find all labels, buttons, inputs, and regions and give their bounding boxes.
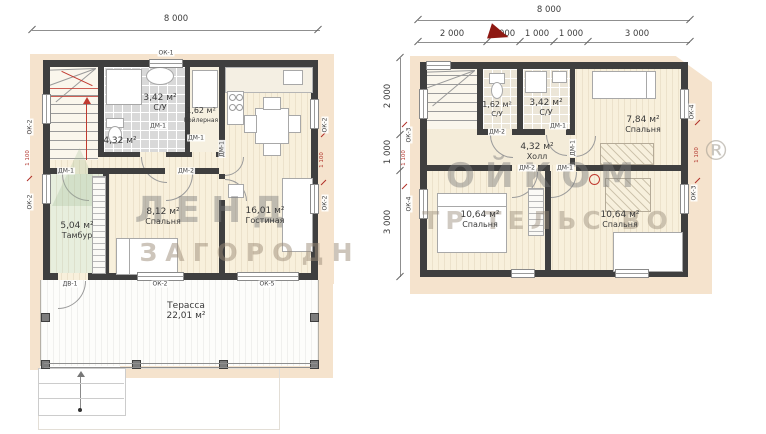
wall (182, 60, 318, 67)
terrace-edge (44, 363, 317, 364)
room-label-bedroom-left: 10,64 м² Спальня (460, 210, 499, 229)
window-ok2 (138, 273, 183, 280)
room-name: Спальня (600, 220, 639, 229)
room-label-terrace: Терасса 22,01 м² (166, 302, 205, 321)
room-area: 3,42 м² (529, 98, 562, 108)
room-label-su-left: 1,62 м² С/У (482, 100, 512, 119)
wall (88, 168, 165, 174)
window (512, 270, 534, 277)
window (427, 62, 450, 69)
chair (263, 143, 281, 156)
step-line (38, 398, 124, 399)
wall (420, 118, 427, 190)
room-label-bedroom-right: 10,64 м² Спальня (600, 210, 639, 229)
room-area: 7,84 м² (625, 115, 661, 125)
door-tag: ДМ-1 (187, 135, 205, 142)
window-tag: ОК-2 (152, 281, 169, 288)
door-tag: ДМ-2 (488, 129, 506, 136)
wall (570, 69, 575, 135)
window-tag: ОК-2 (322, 117, 329, 134)
dim-label: 2 000 (440, 29, 464, 39)
room-label-hall: 4,32 м² (103, 136, 136, 146)
wall (477, 129, 488, 135)
wall (681, 62, 688, 90)
window-tag: ОК-3 (691, 185, 698, 202)
window-tag: ОК-2 (27, 119, 34, 136)
room-name: Бойлерная (184, 116, 218, 125)
window-tag: ОК-1 (158, 50, 175, 57)
kitchen-sink (283, 70, 303, 85)
room-label-su: 3,42 м² С/У (143, 93, 176, 112)
wall (43, 60, 150, 67)
sink (146, 67, 174, 85)
room-area: 1,62 м² (184, 106, 218, 116)
room-name: Терасса (166, 302, 205, 311)
door-tag: ДМ-1 (556, 165, 574, 172)
room-label-living: 16,01 м² Гостиная (245, 206, 284, 225)
room-name: Гостиная (245, 216, 284, 225)
red-dim-label: 1 100 (319, 152, 325, 168)
room-label-bedroom: 8,12 м² Спальня (145, 207, 181, 226)
door-tag: ДМ-2 (177, 168, 195, 175)
window-ok1 (150, 60, 182, 67)
room-area: 16,01 м² (245, 206, 284, 216)
watermark-text: ЗАГОРОДН (139, 238, 360, 267)
window-ok2 (43, 175, 50, 203)
door-tag: ДМ-2 (518, 165, 536, 172)
wall (166, 152, 192, 157)
room-name: С/У (529, 108, 562, 117)
room-name: Холл (520, 152, 553, 161)
plan1-roof-overhang-right (318, 280, 333, 372)
room-name: Спальня (145, 217, 181, 226)
stairs-treads (50, 95, 98, 160)
stairs-direction-arrow (83, 97, 91, 104)
steps-arrow-line (80, 376, 81, 410)
wall (43, 203, 50, 280)
wall (517, 69, 523, 129)
room-label-hall: 4,32 м² Холл (520, 142, 553, 161)
dim-label: 8 000 (537, 5, 561, 15)
steps-arrow-head (77, 371, 85, 377)
room-area: 8,12 м² (145, 207, 181, 217)
dim-label: 8 000 (164, 14, 188, 24)
stove-burner (229, 94, 236, 101)
window-ok4 (681, 90, 688, 118)
room-label-boiler: 1,62 м² Бойлерная (184, 106, 218, 125)
steps-dot (78, 408, 82, 412)
window-tag: ОК-2 (27, 194, 34, 211)
terrace-edge (44, 367, 317, 368)
window-ok3 (420, 90, 427, 118)
wall (566, 129, 575, 135)
window-ok3 (681, 185, 688, 213)
dim-line (418, 20, 690, 21)
wall (43, 273, 58, 280)
door-tag: ДМ-1 (149, 123, 167, 130)
stove-burner (229, 104, 236, 111)
wall (450, 62, 688, 69)
room-area: 4,32 м² (520, 142, 553, 152)
wall (43, 60, 50, 95)
room-area: 5,04 м² (60, 221, 93, 231)
red-dim-tick (402, 184, 408, 190)
room-name: Тамбур (60, 231, 93, 240)
shower (106, 69, 142, 105)
wall (298, 273, 318, 280)
window-tag: ОК-2 (322, 195, 329, 212)
door-tag: ДМ-1 (219, 140, 226, 158)
wall (192, 168, 219, 174)
door-tag: ДМ-1 (570, 139, 577, 157)
room-name: С/У (143, 103, 176, 112)
window-ok2 (311, 185, 318, 213)
red-dim-label: 1 100 (694, 147, 700, 163)
room-label-su-right: 3,42 м² С/У (529, 98, 562, 117)
room-area: 4,32 м² (103, 136, 136, 146)
dim-label: 3 000 (625, 29, 649, 39)
room-name: С/У (482, 110, 512, 119)
chair (244, 115, 257, 133)
floor-plan-sheet: 8 000 3,42 м² С/У 1,62 м² Бойлерная 4,32… (0, 0, 766, 434)
dining-table (255, 108, 289, 144)
bed-pillow (116, 238, 130, 275)
chair (263, 97, 281, 110)
red-dim-label: 1 100 (25, 150, 31, 166)
wall (477, 69, 483, 129)
window-tag: ОК-4 (406, 196, 413, 213)
wall (183, 273, 238, 280)
watermark-text: ОЙКОМ (446, 156, 644, 196)
stairs-red-line (50, 96, 98, 97)
wall (512, 129, 545, 135)
stove-burner (236, 104, 243, 111)
terrace-post (310, 313, 319, 322)
shower (525, 71, 547, 93)
room-name: Спальня (460, 220, 499, 229)
chair (288, 115, 301, 133)
room-area: 10,64 м² (600, 210, 639, 220)
door-tag: ДВ-1 (62, 281, 79, 288)
step-line (38, 383, 124, 384)
wall (98, 152, 140, 157)
dim-label: 1 000 (383, 140, 393, 164)
room-area: 3,42 м² (143, 93, 176, 103)
wall (420, 270, 512, 277)
room-area: 22,01 м² (166, 311, 205, 321)
wall (420, 62, 427, 90)
door-tag: ДМ-1 (57, 168, 75, 175)
window-tag: ОК-4 (689, 104, 696, 121)
plan1-roof-overhang-left (30, 280, 40, 370)
room-name: Спальня (625, 125, 661, 134)
wardrobe (92, 176, 106, 274)
boiler-unit (192, 70, 218, 108)
stairs-direction-line (86, 104, 87, 160)
stove-burner (236, 94, 243, 101)
wall (219, 174, 225, 179)
bed (613, 232, 683, 272)
red-dim-label: 1 100 (401, 150, 407, 166)
window-ok2 (311, 100, 318, 128)
wall (43, 123, 50, 175)
dim-label: 2 000 (383, 84, 393, 108)
toilet-bowl (491, 82, 503, 99)
dim-line (32, 30, 320, 31)
room-label-tambur: 5,04 м² Тамбур (60, 221, 93, 240)
dim-label: 1 000 (525, 29, 549, 39)
wall (681, 118, 688, 185)
window-tag: ОК-3 (406, 127, 413, 144)
window-tag: ОК-5 (259, 281, 276, 288)
sink (552, 71, 567, 83)
terrace-post (41, 313, 50, 322)
window-ok5 (238, 273, 298, 280)
room-area: 1,62 м² (482, 100, 512, 110)
room-area: 10,64 м² (460, 210, 499, 220)
dim-label: 3 000 (383, 210, 393, 234)
window (616, 270, 648, 277)
wall (311, 128, 318, 185)
door-tag: ДМ-1 (549, 123, 567, 130)
room-label-bedroom-top: 7,84 м² Спальня (625, 115, 661, 134)
red-circle-annotation (589, 174, 600, 185)
dim-label: 1 000 (559, 29, 583, 39)
stairs-red-line (50, 88, 98, 89)
window-ok2 (43, 95, 50, 123)
bed-pillow (646, 71, 656, 99)
watermark-registered-icon: ® (702, 134, 730, 167)
